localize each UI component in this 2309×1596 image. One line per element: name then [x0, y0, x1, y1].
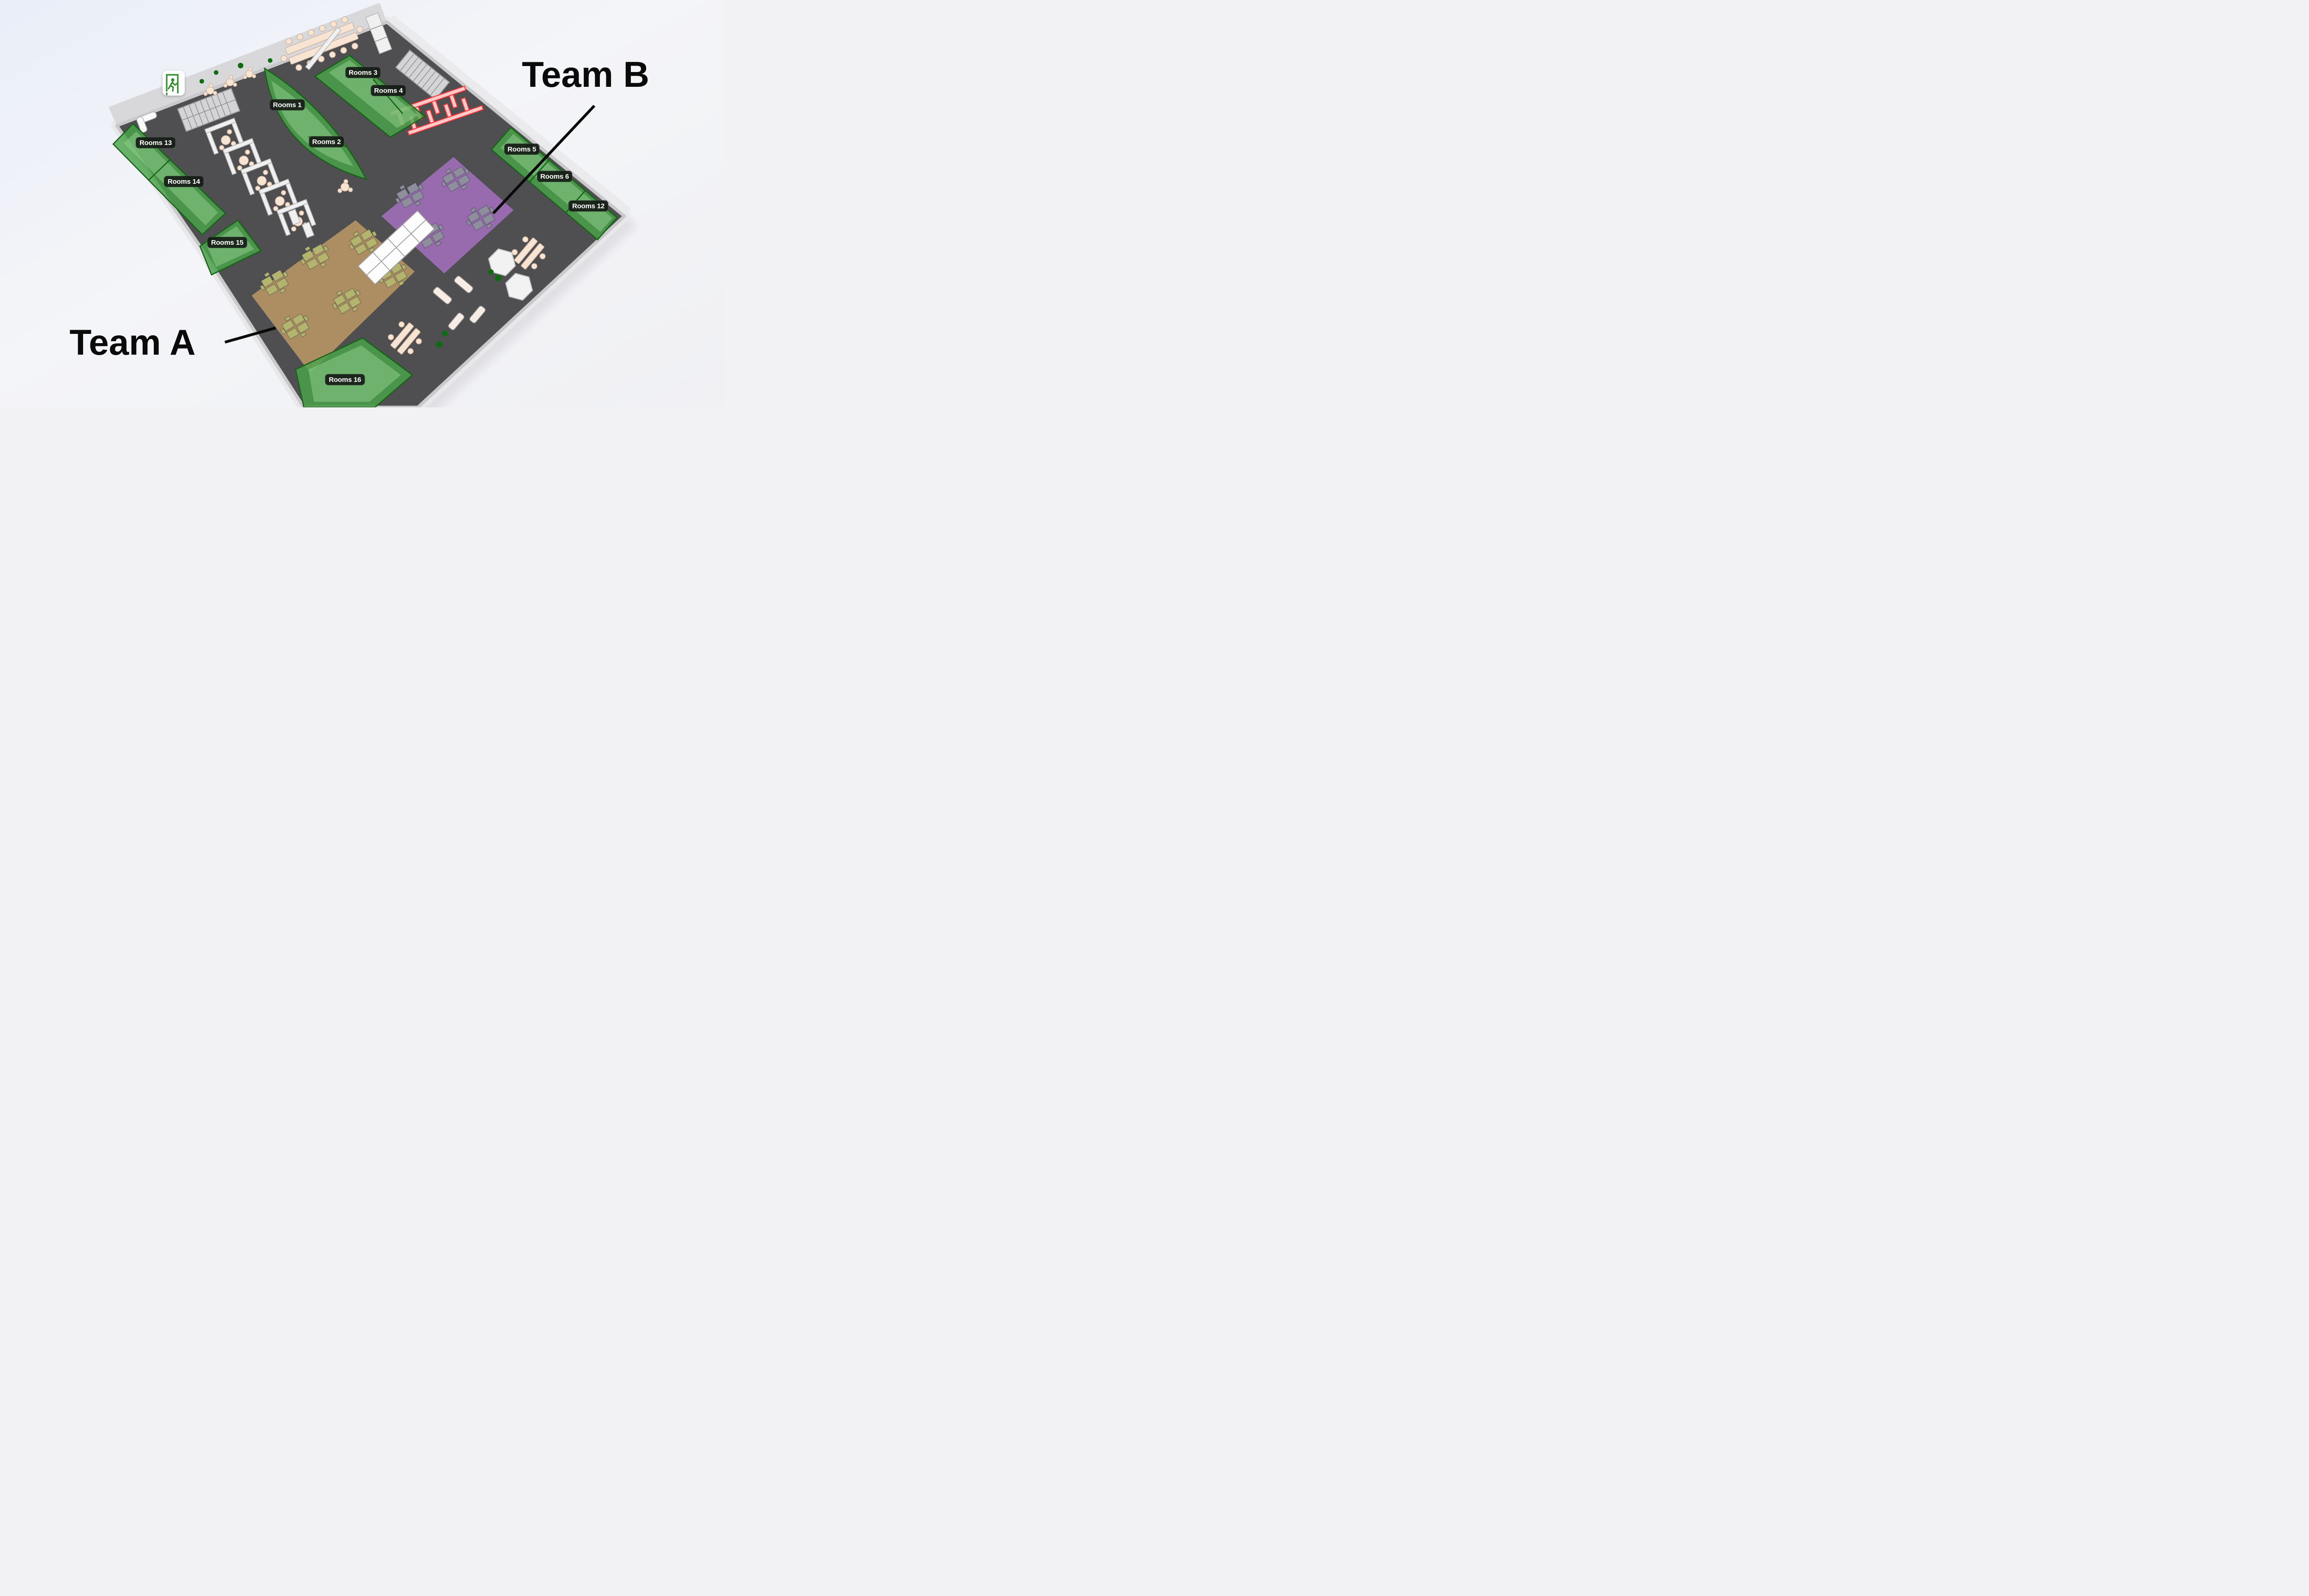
label-rooms-12[interactable]: Rooms 12 — [568, 200, 608, 212]
plant — [238, 63, 243, 68]
svg-text:Rooms 2: Rooms 2 — [312, 138, 341, 146]
label-rooms-15[interactable]: Rooms 15 — [207, 237, 247, 248]
team-b-label: Team B — [522, 54, 649, 95]
svg-text:Rooms 12: Rooms 12 — [572, 202, 604, 210]
label-rooms-5[interactable]: Rooms 5 — [504, 144, 539, 155]
plant — [442, 331, 447, 336]
svg-text:Rooms 16: Rooms 16 — [329, 376, 361, 384]
svg-text:Rooms 4: Rooms 4 — [374, 87, 403, 95]
label-rooms-1[interactable]: Rooms 1 — [270, 99, 305, 110]
svg-text:Rooms 6: Rooms 6 — [540, 173, 569, 181]
plant — [436, 341, 442, 348]
svg-text:Rooms 1: Rooms 1 — [273, 101, 302, 109]
plant — [199, 79, 204, 84]
label-rooms-13[interactable]: Rooms 13 — [136, 137, 175, 148]
plant — [495, 275, 502, 281]
label-rooms-6[interactable]: Rooms 6 — [537, 171, 572, 182]
team-a-label: Team A — [69, 322, 195, 363]
label-rooms-3[interactable]: Rooms 3 — [345, 67, 381, 78]
svg-text:Rooms 13: Rooms 13 — [139, 139, 172, 147]
svg-text:Rooms 3: Rooms 3 — [349, 69, 377, 77]
floorplan-viewport: Rooms 1 Rooms 2 Rooms 3 Rooms 4 Rooms 5 … — [0, 0, 724, 407]
label-rooms-16[interactable]: Rooms 16 — [325, 374, 365, 385]
label-rooms-2[interactable]: Rooms 2 — [309, 136, 344, 147]
plant — [268, 58, 272, 63]
label-rooms-14[interactable]: Rooms 14 — [164, 176, 204, 187]
plant — [488, 269, 494, 275]
svg-text:Rooms 5: Rooms 5 — [508, 145, 536, 153]
svg-text:Rooms 15: Rooms 15 — [211, 239, 243, 247]
label-rooms-4[interactable]: Rooms 4 — [371, 85, 406, 96]
plant — [214, 70, 218, 75]
svg-text:Rooms 14: Rooms 14 — [168, 178, 200, 186]
exit-marker[interactable] — [163, 71, 185, 96]
